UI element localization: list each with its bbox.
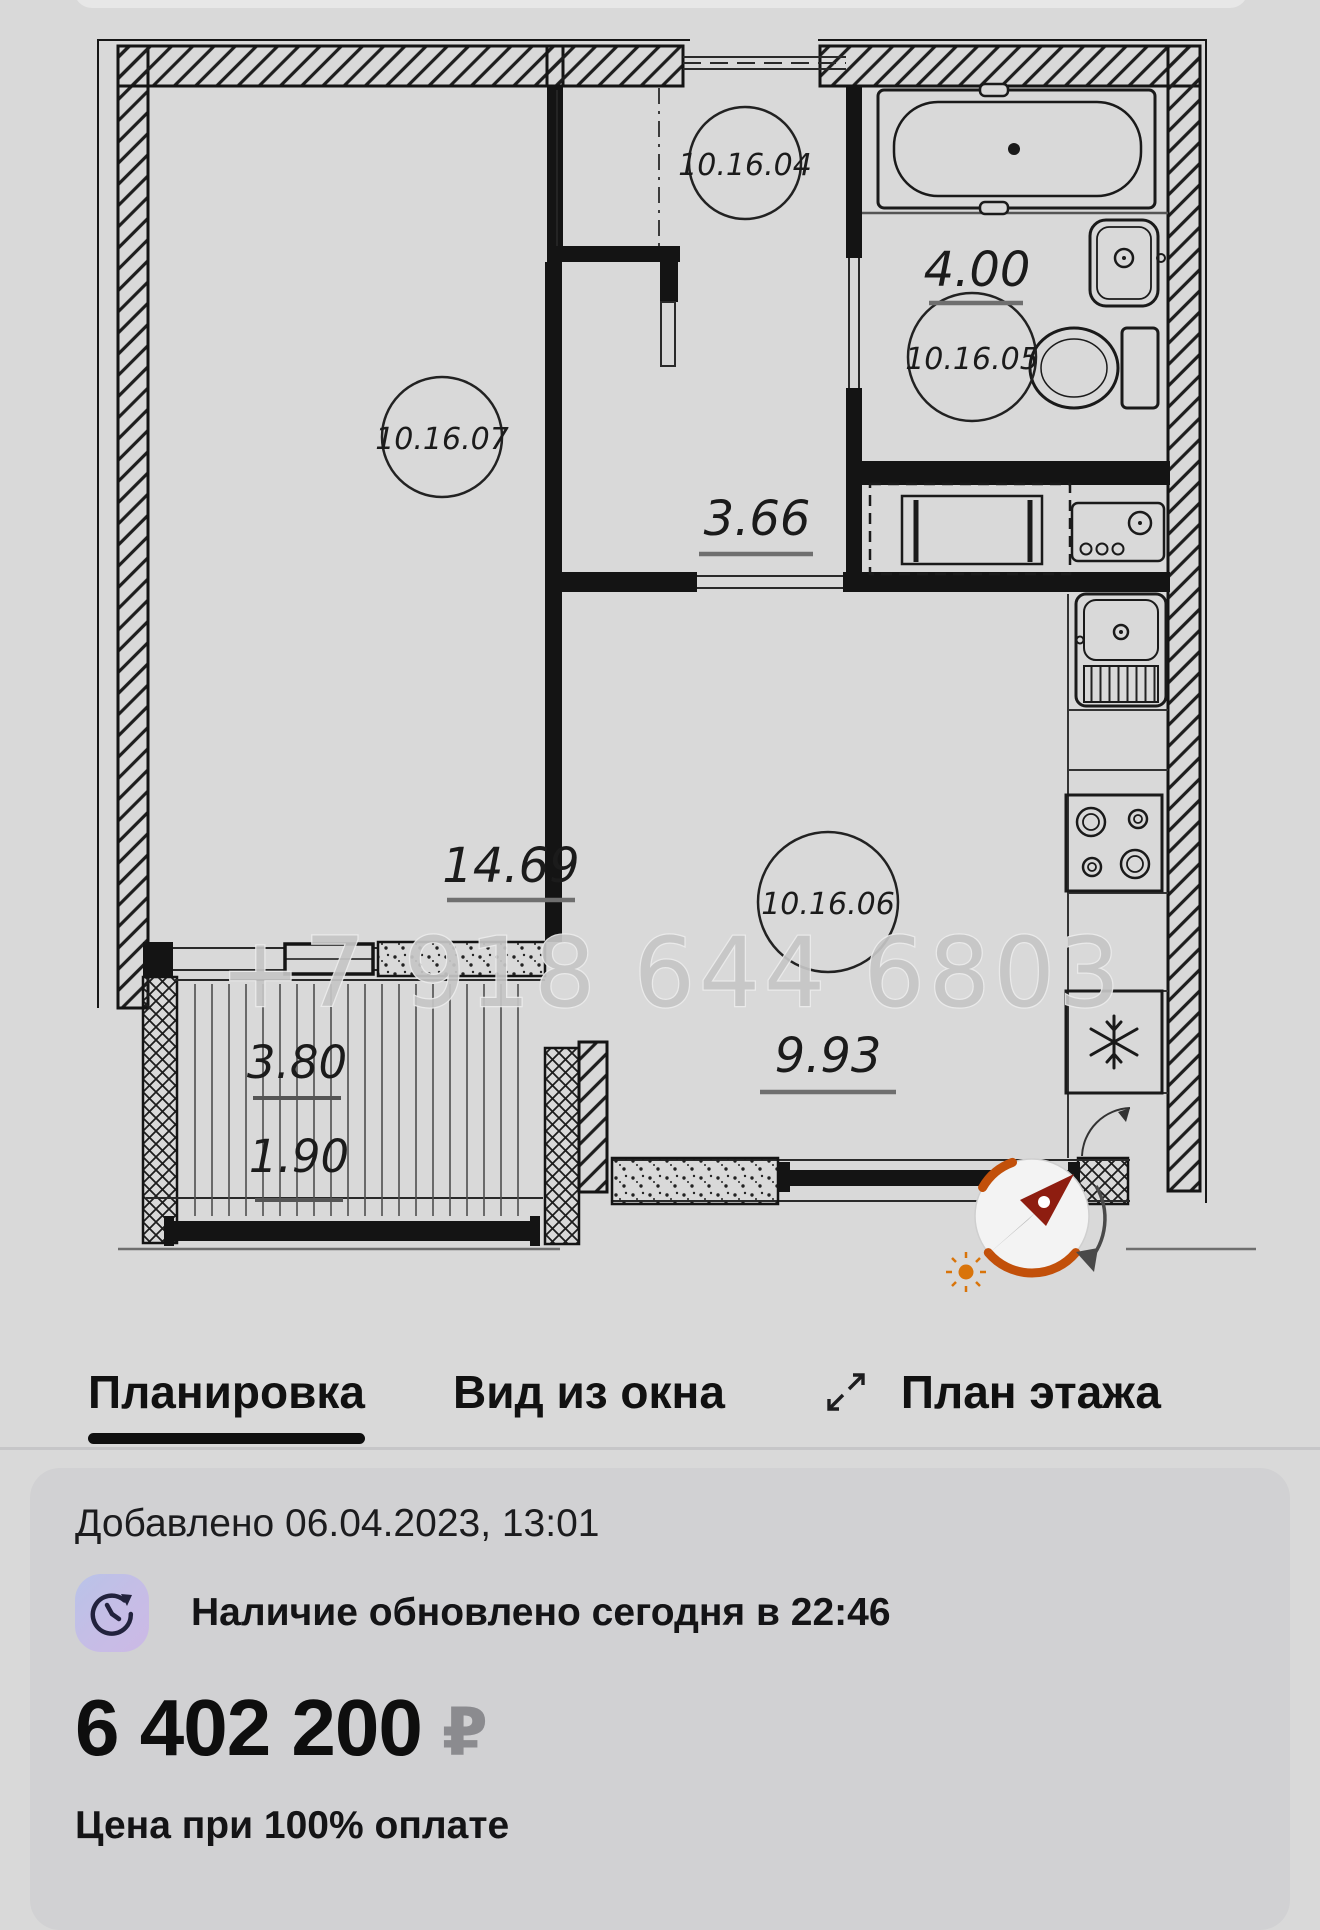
room-living-number: 10.16.07 — [375, 422, 509, 457]
bathroom-sink — [1090, 220, 1165, 306]
section-divider — [0, 1447, 1320, 1450]
listing-info-card: Добавлено 06.04.2023, 13:01 Наличие обно… — [30, 1468, 1290, 1930]
expand-icon — [823, 1369, 869, 1415]
listing-screen: { "floor_plan": { "watermark": "+7 918 6… — [0, 0, 1320, 1904]
price-note: Цена при 100% оплате — [75, 1804, 509, 1848]
availability-row: Наличие обновлено сегодня в 22:46 — [75, 1574, 891, 1652]
availability-text: Наличие обновлено сегодня в 22:46 — [191, 1591, 891, 1635]
washing-machine — [870, 484, 1070, 574]
kitchen-sink — [1076, 594, 1166, 706]
water-heater — [1072, 503, 1164, 561]
gallery-tabs: Планировка Вид из окна План этажа — [0, 1352, 1320, 1432]
room-bathroom-area: 4.00 — [924, 242, 1031, 298]
tab-planning[interactable]: Планировка — [88, 1365, 365, 1419]
room-bathroom-number: 10.16.05 — [905, 342, 1039, 377]
balcony-area: 3.80 — [247, 1036, 347, 1089]
clock-refresh-icon — [86, 1587, 138, 1639]
room-kitchen-area: 9.93 — [775, 1028, 882, 1084]
active-tab-underline — [88, 1433, 365, 1444]
price-row: 6 402 200 ₽ — [75, 1682, 488, 1774]
balcony-area-reduced: 1.90 — [249, 1130, 349, 1183]
availability-icon-badge — [75, 1574, 149, 1652]
currency-symbol: ₽ — [442, 1694, 488, 1771]
door-swing — [1082, 1108, 1130, 1156]
tab-window-view[interactable]: Вид из окна — [453, 1365, 725, 1419]
room-living-area: 14.69 — [442, 838, 579, 894]
tab-floor-plan[interactable]: План этажа — [823, 1365, 1161, 1419]
price-value: 6 402 200 — [75, 1682, 422, 1774]
tab-floor-plan-label: План этажа — [901, 1365, 1161, 1419]
toilet — [1030, 328, 1158, 408]
stove — [1066, 795, 1162, 891]
added-date: Добавлено 06.04.2023, 13:01 — [75, 1502, 599, 1546]
room-hallway-area: 3.66 — [704, 491, 811, 547]
sun-icon — [946, 1252, 986, 1292]
floor-plan-image[interactable]: 10.16.07 14.69 10.16.04 3.66 4.00 10.16.… — [0, 0, 1320, 1310]
bathtub — [878, 84, 1155, 214]
room-hallway-number: 10.16.04 — [678, 148, 812, 183]
watermark-phone: +7 918 644 6803 — [220, 917, 1124, 1029]
